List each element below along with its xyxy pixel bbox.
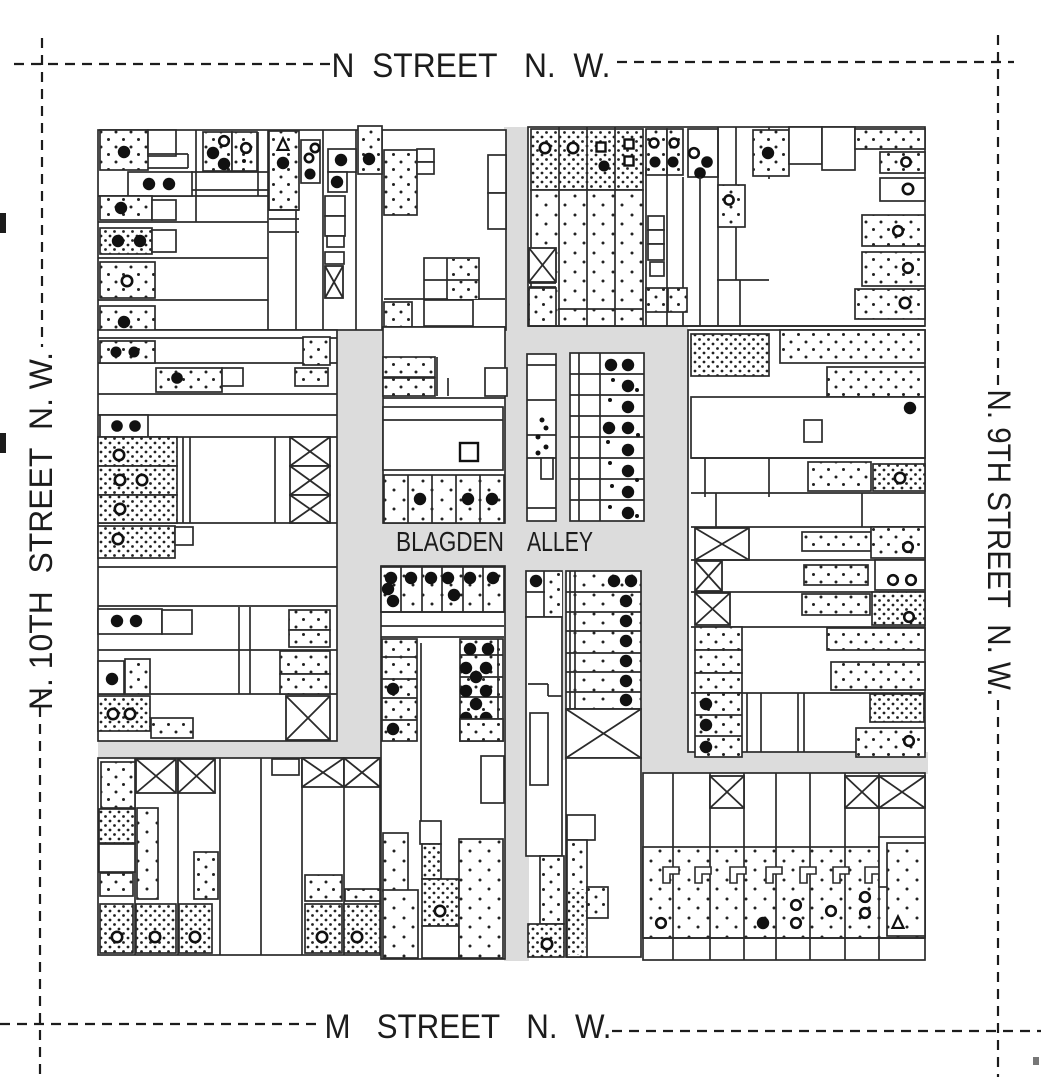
svg-text:ALLEY: ALLEY xyxy=(527,526,593,557)
svg-text:N. 9TH STREET N. W.: N. 9TH STREET N. W. xyxy=(981,390,1017,697)
svg-text:N. 10TH STREET N. W.: N. 10TH STREET N. W. xyxy=(23,352,59,710)
svg-text:BLAGDEN: BLAGDEN xyxy=(396,526,504,557)
svg-text:N STREET N. W.: N STREET N. W. xyxy=(332,47,611,85)
svg-text:M STREET N. W.: M STREET N. W. xyxy=(325,1008,612,1046)
